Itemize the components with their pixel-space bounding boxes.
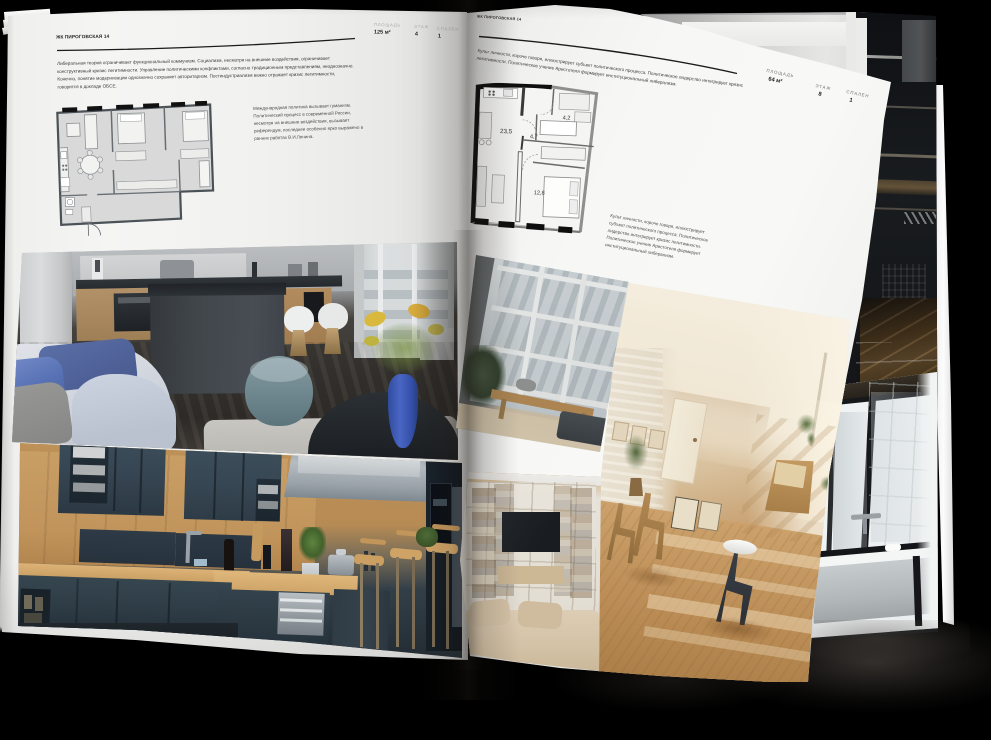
svg-text:4,7: 4,7 — [530, 134, 538, 140]
svg-text:12,8: 12,8 — [534, 190, 545, 196]
svg-text:4,2: 4,2 — [563, 115, 571, 121]
